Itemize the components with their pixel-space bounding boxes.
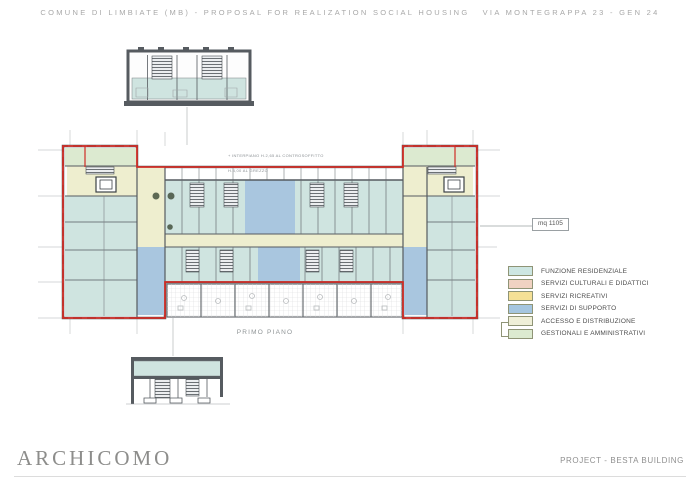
legend-label: SERVIZI DI SUPPORTO <box>541 305 616 312</box>
floor-label: PRIMO PIANO <box>198 329 332 336</box>
studio-logo: ARCHICOMO <box>17 446 172 471</box>
zone-admin-right <box>403 148 475 166</box>
legend-item-culturali: SERVIZI CULTURALI E DIDATTICI <box>508 279 649 289</box>
elevator-right <box>444 177 464 192</box>
legend-item-ricreativi: SERVIZI RICREATIVI <box>508 291 649 301</box>
interfloor-note-line1: + INTERPIANO H.2,65 AL CONTROSOFFITTO <box>228 153 324 158</box>
legend-item-gestionali: GESTIONALI E AMMINISTRATIVI <box>508 329 649 339</box>
floor-plan-drawing <box>0 0 700 495</box>
top-section-drawing <box>124 47 254 106</box>
legend-label: FUNZIONE RESIDENZIALE <box>541 268 627 275</box>
zone-support-right <box>403 247 427 315</box>
terrace <box>167 284 402 317</box>
legend-bracket <box>501 322 509 337</box>
area-tag: mq 1105 <box>532 218 569 231</box>
interfloor-note-line2: H.4,00 AL GREZZO <box>228 168 324 173</box>
legend-item-residenziale: FUNZIONE RESIDENZIALE <box>508 266 649 276</box>
interfloor-note: + INTERPIANO H.2,65 AL CONTROSOFFITTO H.… <box>228 143 324 183</box>
project-name: PROJECT - BESTA BUILDING <box>560 456 684 465</box>
legend-swatch-supporto <box>508 304 533 314</box>
legend-label: SERVIZI RICREATIVI <box>541 293 608 300</box>
bottom-section-drawing <box>126 357 230 404</box>
zone-rooms-left-wing <box>65 196 137 316</box>
zone-corridor-central <box>165 234 403 247</box>
legend-label: ACCESSO E DISTRIBUZIONE <box>541 318 636 325</box>
footer-rule <box>14 476 686 477</box>
legend: FUNZIONE RESIDENZIALE SERVIZI CULTURALI … <box>508 266 649 341</box>
legend-label: GESTIONALI E AMMINISTRATIVI <box>541 330 645 337</box>
zone-corridor-right <box>403 167 427 247</box>
legend-swatch-culturali <box>508 279 533 289</box>
zone-corridor-left <box>137 167 165 247</box>
elevator-left <box>96 177 116 192</box>
zone-support-left <box>137 247 165 315</box>
legend-swatch-accesso <box>508 316 533 326</box>
zone-admin-left <box>65 148 137 166</box>
legend-swatch-residenziale <box>508 266 533 276</box>
zone-rooms-right-wing <box>427 196 475 316</box>
legend-item-supporto: SERVIZI DI SUPPORTO <box>508 304 649 314</box>
zone-support-center-top <box>245 180 295 234</box>
legend-label: SERVIZI CULTURALI E DIDATTICI <box>541 280 649 287</box>
presentation-board: COMUNE DI LIMBIATE (MB) - PROPOSAL FOR R… <box>0 0 700 495</box>
legend-swatch-ricreativi <box>508 291 533 301</box>
zone-support-center-bottom <box>258 247 300 282</box>
legend-item-accesso: ACCESSO E DISTRIBUZIONE <box>508 316 649 326</box>
legend-swatch-gestionali <box>508 329 533 339</box>
